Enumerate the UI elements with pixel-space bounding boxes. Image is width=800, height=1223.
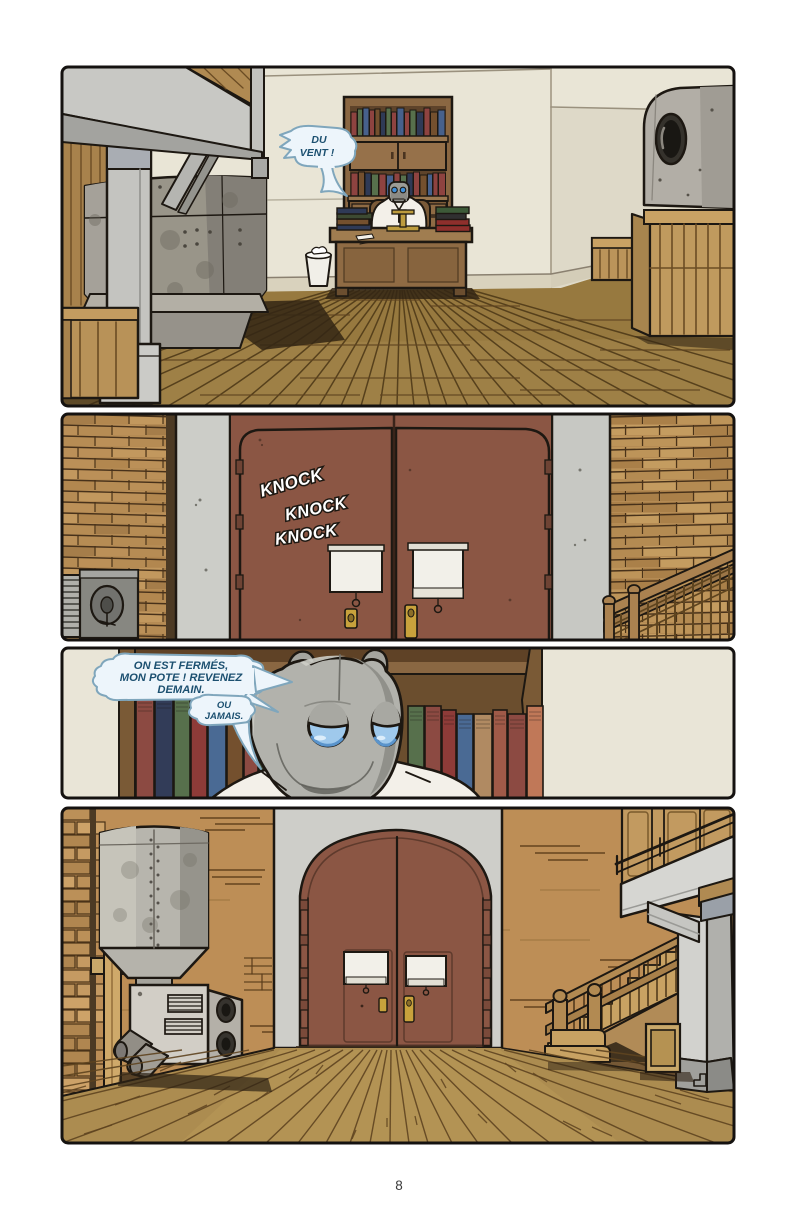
svg-text:JAMAIS.: JAMAIS. (205, 711, 244, 722)
svg-text:VENT !: VENT ! (300, 147, 335, 159)
svg-text:ON EST FERMÉS,: ON EST FERMÉS, (134, 659, 228, 672)
svg-text:OU: OU (217, 700, 232, 711)
svg-text:MON POTE ! REVENEZ: MON POTE ! REVENEZ (120, 672, 244, 684)
svg-text:8: 8 (395, 1178, 403, 1193)
svg-text:DEMAIN.: DEMAIN. (157, 684, 204, 696)
svg-text:DU: DU (311, 134, 327, 146)
